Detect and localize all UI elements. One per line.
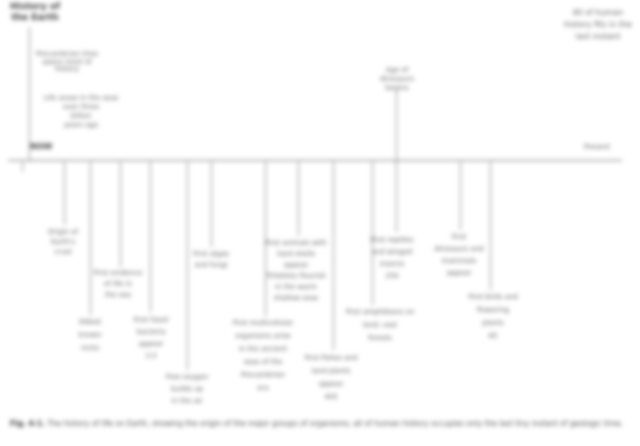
drop-line-3 [120, 162, 121, 267]
text-line: in the warm [246, 282, 346, 293]
event-label-6: First algaeand fungi [171, 249, 251, 271]
text-line: appear [291, 378, 371, 391]
text-line: appear [419, 267, 499, 279]
text-line: Origin of [23, 227, 103, 237]
timeline-axis [8, 160, 622, 162]
event-label-8: First animals withhard shellsappearTrilo… [246, 238, 346, 304]
figure-caption: Fig. 4-1. The history of life on Earth, … [10, 419, 632, 428]
text-line: organisms arise [213, 330, 313, 343]
timeline-figure: History ofthe Earth Precambrian timespan… [0, 0, 640, 446]
timeline-end-label: Present [577, 141, 617, 153]
text-line: All of human [554, 7, 640, 19]
text-line: Earth's [23, 237, 103, 247]
text-line: history [27, 66, 107, 74]
text-line: history fits in the [554, 19, 640, 31]
text-line: Age of [367, 66, 427, 75]
text-line: First animals with [246, 238, 346, 249]
event-label-1: Origin ofEarth'scrust [23, 227, 103, 257]
text-line: land plants [291, 365, 371, 378]
text-line: bacteria [111, 326, 191, 338]
event-label-9: First fishes andland plantsappear405 [291, 352, 371, 404]
text-line: Trilobites flourish [246, 271, 346, 282]
marker-label: Age ofdinosaursbegins [367, 66, 427, 93]
text-line: flowering [453, 304, 533, 317]
text-line: First birds and [453, 291, 533, 304]
text-line: dinosaurs [367, 75, 427, 84]
text-line: last instant [554, 31, 640, 43]
text-line: over three [38, 103, 124, 112]
text-line: First algae [171, 249, 251, 260]
text-line: First fossil [111, 314, 191, 326]
text-line: begins [367, 84, 427, 93]
text-line: the Earth [6, 13, 64, 24]
top-right-note: All of humanhistory fits in thelast inst… [554, 7, 640, 43]
axis-tick [22, 162, 23, 172]
left-connector-line [29, 27, 30, 160]
caption-prefix: Fig. 4-1. [10, 419, 45, 428]
text-line: 405 [291, 391, 371, 404]
text-line: of life in [78, 279, 158, 290]
text-line: forests [340, 332, 420, 345]
text-line: appear [111, 338, 191, 350]
event-label-4: First fossilbacteriaappear3.5 [111, 314, 191, 362]
event-label-3: First evidenceof life inthe sea [78, 268, 158, 301]
text-line: 65 [453, 330, 533, 343]
event-label-13: First birds andfloweringplants65 [453, 291, 533, 343]
intro-paragraph-2: Life arose in the seasover threebilliony… [38, 94, 124, 130]
text-line: the sea [78, 290, 158, 301]
timeline-start-label: NOW [30, 142, 56, 151]
event-label-10: First amphibians onland; vastforests [340, 306, 420, 345]
text-line: History of [6, 2, 64, 13]
figure-page: History ofthe Earth Precambrian timespan… [0, 0, 640, 446]
event-label-12: Firstdinosaurs andmammalsappear [419, 231, 499, 279]
text-line: billion [38, 112, 124, 121]
drop-line-12 [460, 162, 461, 230]
text-line: dinosaurs and [419, 243, 499, 255]
figure-title: History ofthe Earth [6, 2, 64, 24]
drop-line-6 [211, 162, 212, 247]
drop-line-8 [298, 162, 299, 236]
text-line: appear [246, 260, 346, 271]
text-line: land; vast [340, 319, 420, 332]
text-line: mammals [419, 255, 499, 267]
text-line: 3.5 [111, 350, 191, 362]
text-line: First amphibians on [340, 306, 420, 319]
text-line: plants [453, 317, 533, 330]
text-line: and fungi [171, 260, 251, 271]
text-line: in the air [147, 395, 227, 407]
text-line: First multicellular [213, 317, 313, 330]
text-line: shallow seas [246, 293, 346, 304]
text-line: Life arose in the seas [38, 94, 124, 103]
caption-text: The history of life on Earth, showing th… [45, 419, 623, 428]
text-line: First [419, 231, 499, 243]
marker-line [396, 92, 397, 232]
drop-line-1 [64, 162, 65, 225]
text-line: years ago [38, 121, 124, 130]
text-line: First fishes and [291, 352, 371, 365]
text-line: First evidence [78, 268, 158, 279]
text-line: crust [23, 247, 103, 257]
intro-paragraph-1: Precambrian timespans most ofhistory [27, 51, 107, 74]
text-line: hard shells [246, 249, 346, 260]
